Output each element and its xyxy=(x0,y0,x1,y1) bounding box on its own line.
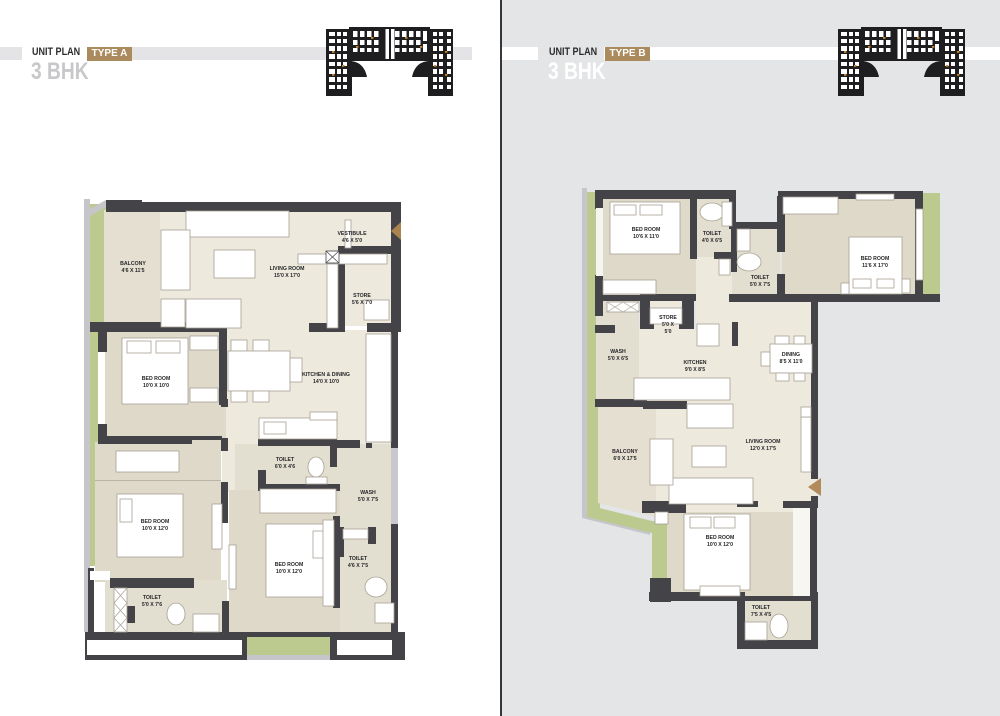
svg-text:15'0 X 17'0: 15'0 X 17'0 xyxy=(274,273,300,279)
svg-text:BED ROOM: BED ROOM xyxy=(275,562,304,568)
svg-text:DINING: DINING xyxy=(782,352,800,358)
svg-text:11'6 X 17'0: 11'6 X 17'0 xyxy=(862,263,888,269)
svg-text:BED ROOM: BED ROOM xyxy=(632,227,661,233)
svg-text:WASH: WASH xyxy=(360,490,376,496)
svg-text:5'6 X 7'0: 5'6 X 7'0 xyxy=(352,300,372,306)
svg-text:4'0 X 6'5: 4'0 X 6'5 xyxy=(702,238,722,244)
svg-text:10'6 X 11'0: 10'6 X 11'0 xyxy=(633,234,659,240)
svg-text:10'0 X 10'0: 10'0 X 10'0 xyxy=(143,383,169,389)
svg-text:4'6 X 5'0: 4'6 X 5'0 xyxy=(342,238,362,244)
svg-text:BED ROOM: BED ROOM xyxy=(141,519,170,525)
svg-text:14'0 X 10'0: 14'0 X 10'0 xyxy=(313,379,339,385)
svg-text:TOILET: TOILET xyxy=(349,556,368,562)
svg-text:5'0: 5'0 xyxy=(664,329,671,335)
svg-text:12'0 X 17'5: 12'0 X 17'5 xyxy=(750,446,776,452)
svg-text:TOILET: TOILET xyxy=(143,595,162,601)
svg-text:5'0 X 7'5: 5'0 X 7'5 xyxy=(358,497,378,503)
svg-text:KITCHEN & DINING: KITCHEN & DINING xyxy=(302,372,350,378)
svg-text:6'0 X 17'5: 6'0 X 17'5 xyxy=(613,456,636,462)
svg-text:4'6 X 7'5: 4'6 X 7'5 xyxy=(348,563,368,569)
svg-text:TOILET: TOILET xyxy=(276,457,295,463)
svg-text:LIVING ROOM: LIVING ROOM xyxy=(270,266,305,272)
svg-text:5'0 X 6'5: 5'0 X 6'5 xyxy=(608,356,628,362)
svg-text:5'0 X 7'5: 5'0 X 7'5 xyxy=(750,282,770,288)
svg-text:TOILET: TOILET xyxy=(751,275,770,281)
svg-text:BED ROOM: BED ROOM xyxy=(861,256,890,262)
svg-text:9'0 X 8'5: 9'0 X 8'5 xyxy=(685,367,705,373)
svg-text:STORE: STORE xyxy=(353,293,371,299)
svg-text:4'6 X 11'5: 4'6 X 11'5 xyxy=(122,268,145,274)
svg-text:LIVING ROOM: LIVING ROOM xyxy=(746,439,781,445)
svg-text:5'0 X 7'6: 5'0 X 7'6 xyxy=(142,602,162,608)
svg-text:BED ROOM: BED ROOM xyxy=(706,535,735,541)
svg-text:7'5 X 4'5: 7'5 X 4'5 xyxy=(751,612,771,618)
svg-text:BED ROOM: BED ROOM xyxy=(142,376,171,382)
svg-text:VESTIBULE: VESTIBULE xyxy=(337,231,367,237)
svg-text:BALCONY: BALCONY xyxy=(120,261,146,267)
svg-text:KITCHEN: KITCHEN xyxy=(683,360,706,366)
svg-text:TOILET: TOILET xyxy=(703,231,722,237)
svg-text:WASH: WASH xyxy=(610,349,626,355)
svg-text:BALCONY: BALCONY xyxy=(612,449,638,455)
svg-text:10'0 X 12'0: 10'0 X 12'0 xyxy=(707,542,733,548)
svg-text:STORE: STORE xyxy=(659,315,677,321)
svg-text:5'0 X: 5'0 X xyxy=(662,322,674,328)
svg-text:10'0 X 12'0: 10'0 X 12'0 xyxy=(142,526,168,532)
svg-text:8'5 X 11'0: 8'5 X 11'0 xyxy=(780,359,803,365)
svg-text:6'0 X 4'6: 6'0 X 4'6 xyxy=(275,464,295,470)
svg-text:TOILET: TOILET xyxy=(752,605,771,611)
svg-text:10'0 X 12'0: 10'0 X 12'0 xyxy=(276,569,302,575)
